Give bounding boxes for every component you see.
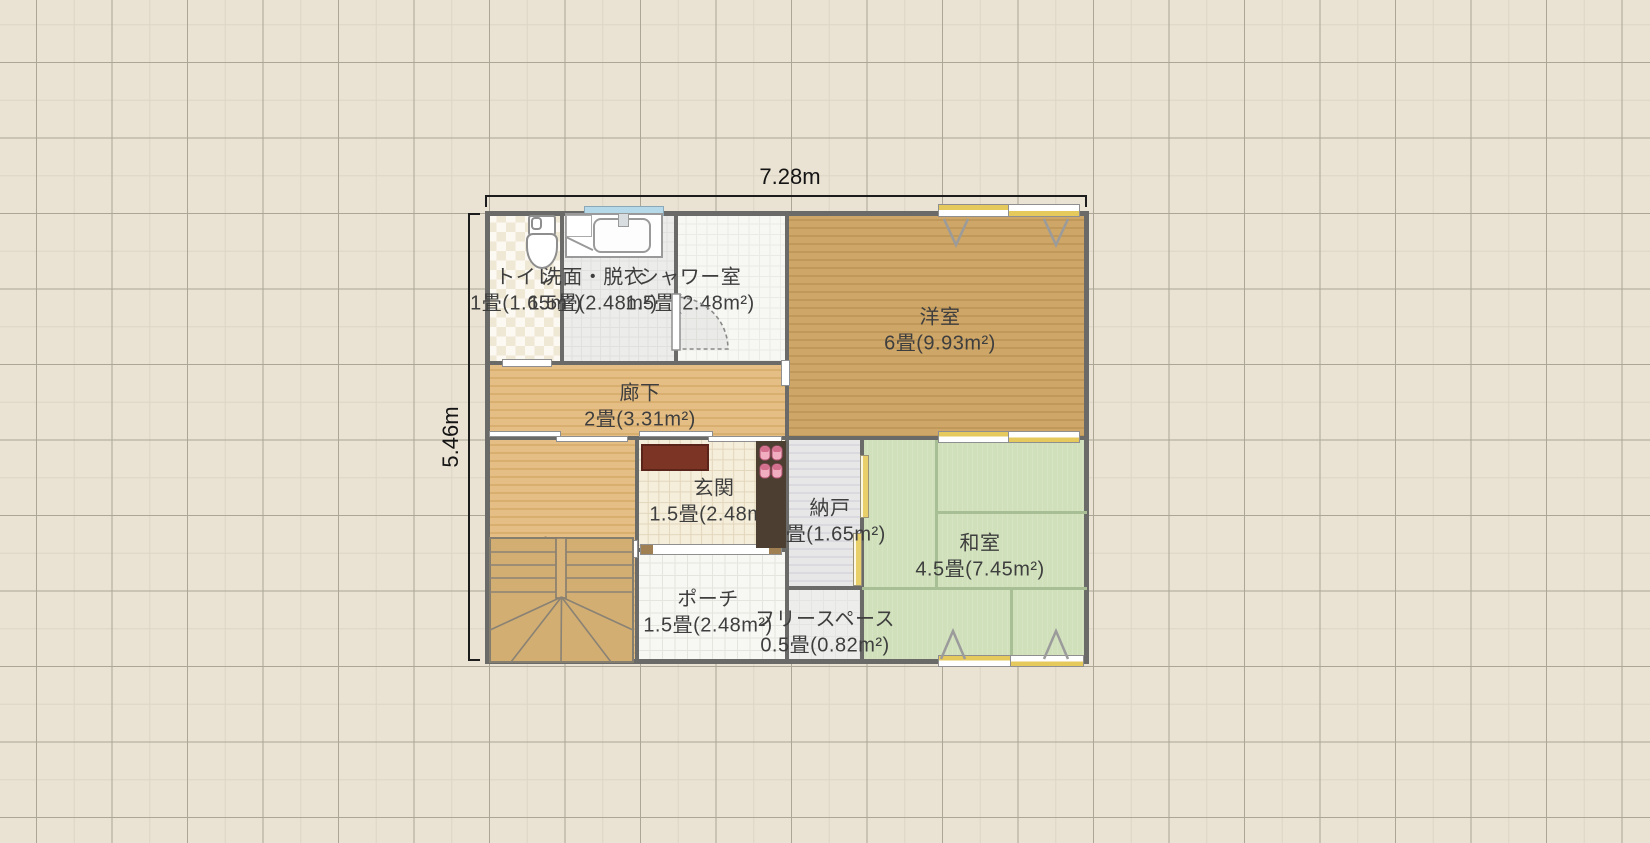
- casement-window-marks: [933, 627, 1093, 661]
- floor-plan-canvas[interactable]: トイレ1畳(1.65m²)洗面・脱衣1.5畳(2.48m²)シャワー室1.5畳(…: [0, 0, 1650, 843]
- entrance-mat[interactable]: [641, 444, 709, 471]
- casement-window-marks: [936, 217, 1086, 249]
- door-swing-icon[interactable]: [660, 285, 740, 360]
- staircase-icon[interactable]: [489, 537, 634, 663]
- slippers-icon[interactable]: [757, 443, 787, 483]
